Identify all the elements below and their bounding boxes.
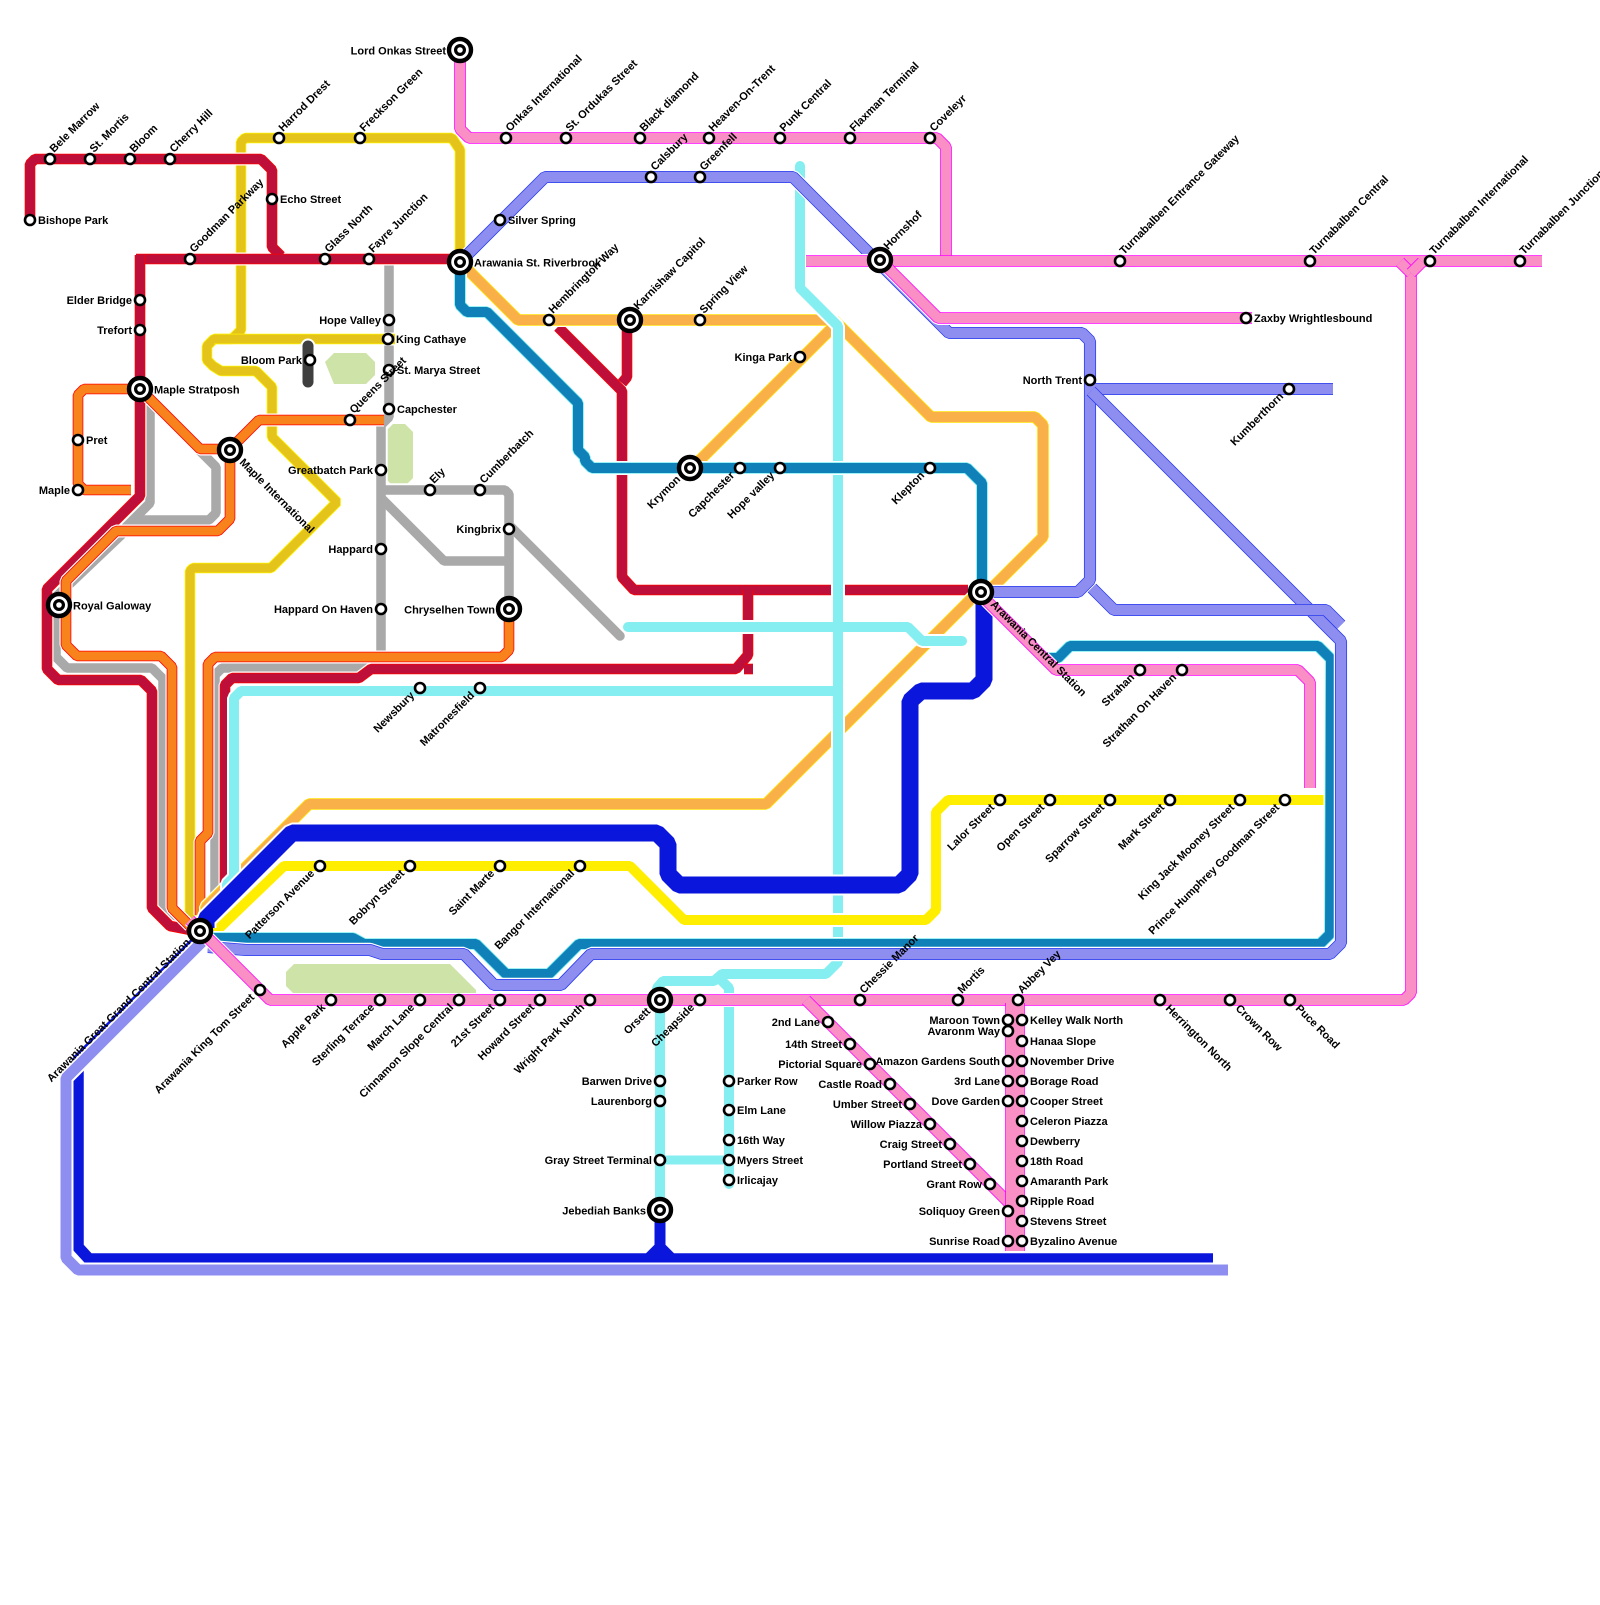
svg-text:Parker Row: Parker Row bbox=[737, 1076, 798, 1088]
svg-text:Sunrise Road: Sunrise Road bbox=[929, 1236, 1000, 1248]
svg-text:Pret: Pret bbox=[86, 435, 108, 447]
svg-text:Irlicajay: Irlicajay bbox=[737, 1175, 779, 1187]
svg-text:Dewberry: Dewberry bbox=[1030, 1136, 1081, 1148]
svg-text:St. Marya Street: St. Marya Street bbox=[397, 365, 480, 377]
svg-text:Amaranth Park: Amaranth Park bbox=[1030, 1176, 1109, 1188]
svg-text:Amazon Gardens South: Amazon Gardens South bbox=[875, 1056, 1000, 1068]
svg-text:Avaronm Way: Avaronm Way bbox=[927, 1026, 1000, 1038]
svg-text:Echo Street: Echo Street bbox=[280, 194, 341, 206]
svg-text:Kingbrix: Kingbrix bbox=[456, 524, 501, 536]
svg-text:Soliquoy Green: Soliquoy Green bbox=[919, 1206, 1001, 1218]
svg-text:Zaxby Wrightlesbound: Zaxby Wrightlesbound bbox=[1254, 313, 1372, 325]
svg-text:Happard On Haven: Happard On Haven bbox=[274, 604, 373, 616]
svg-text:Craig Street: Craig Street bbox=[880, 1139, 943, 1151]
svg-text:Kinga Park: Kinga Park bbox=[735, 352, 793, 364]
svg-text:Byzalino Avenue: Byzalino Avenue bbox=[1030, 1236, 1117, 1248]
svg-text:Hanaa Slope: Hanaa Slope bbox=[1030, 1036, 1096, 1048]
svg-text:Castle Road: Castle Road bbox=[818, 1079, 882, 1091]
svg-text:North Trent: North Trent bbox=[1023, 375, 1083, 387]
svg-text:November Drive: November Drive bbox=[1030, 1056, 1114, 1068]
svg-text:Dove Garden: Dove Garden bbox=[932, 1096, 1001, 1108]
svg-text:Myers Street: Myers Street bbox=[737, 1155, 803, 1167]
svg-text:Jebediah Banks: Jebediah Banks bbox=[562, 1206, 646, 1218]
svg-text:Happard: Happard bbox=[328, 544, 373, 556]
svg-text:Pictorial Square: Pictorial Square bbox=[778, 1059, 862, 1071]
svg-text:Greatbatch Park: Greatbatch Park bbox=[288, 465, 374, 477]
svg-text:Trefort: Trefort bbox=[97, 325, 132, 337]
svg-text:Barwen Drive: Barwen Drive bbox=[582, 1076, 652, 1088]
svg-text:Borage Road: Borage Road bbox=[1030, 1076, 1098, 1088]
svg-text:Maple: Maple bbox=[39, 485, 70, 497]
svg-text:Maple Stratposh: Maple Stratposh bbox=[154, 385, 240, 397]
svg-text:King Cathaye: King Cathaye bbox=[396, 334, 466, 346]
svg-text:14th Street: 14th Street bbox=[785, 1039, 842, 1051]
svg-text:Grant Row: Grant Row bbox=[926, 1179, 982, 1191]
svg-text:Stevens Street: Stevens Street bbox=[1030, 1216, 1107, 1228]
svg-text:Bloom Park: Bloom Park bbox=[241, 355, 303, 367]
svg-text:Arawania St. Riverbrook: Arawania St. Riverbrook bbox=[474, 258, 602, 270]
svg-text:Capchester: Capchester bbox=[397, 404, 458, 416]
svg-text:Celeron Piazza: Celeron Piazza bbox=[1030, 1116, 1109, 1128]
svg-text:Kelley Walk North: Kelley Walk North bbox=[1030, 1015, 1123, 1027]
svg-text:Bishope Park: Bishope Park bbox=[38, 215, 109, 227]
svg-text:Elm Lane: Elm Lane bbox=[737, 1105, 786, 1117]
svg-text:Umber Street: Umber Street bbox=[833, 1099, 902, 1111]
svg-text:3rd Lane: 3rd Lane bbox=[954, 1076, 1000, 1088]
svg-text:Lord Onkas Street: Lord Onkas Street bbox=[351, 46, 447, 58]
svg-text:Willow Piazza: Willow Piazza bbox=[851, 1119, 923, 1131]
svg-text:Gray Street Terminal: Gray Street Terminal bbox=[545, 1155, 652, 1167]
svg-text:Ripple Road: Ripple Road bbox=[1030, 1196, 1094, 1208]
svg-text:Chryselhen Town: Chryselhen Town bbox=[404, 605, 495, 617]
svg-text:Laurenborg: Laurenborg bbox=[591, 1096, 652, 1108]
svg-text:Elder Bridge: Elder Bridge bbox=[67, 295, 132, 307]
svg-text:2nd Lane: 2nd Lane bbox=[772, 1017, 820, 1029]
svg-text:18th Road: 18th Road bbox=[1030, 1156, 1083, 1168]
svg-text:16th Way: 16th Way bbox=[737, 1135, 786, 1147]
svg-text:Portland Street: Portland Street bbox=[883, 1159, 962, 1171]
svg-text:Hope Valley: Hope Valley bbox=[319, 315, 382, 327]
svg-text:Silver Spring: Silver Spring bbox=[508, 215, 576, 227]
svg-text:Cooper Street: Cooper Street bbox=[1030, 1096, 1103, 1108]
svg-text:Royal Galoway: Royal Galoway bbox=[73, 601, 152, 613]
